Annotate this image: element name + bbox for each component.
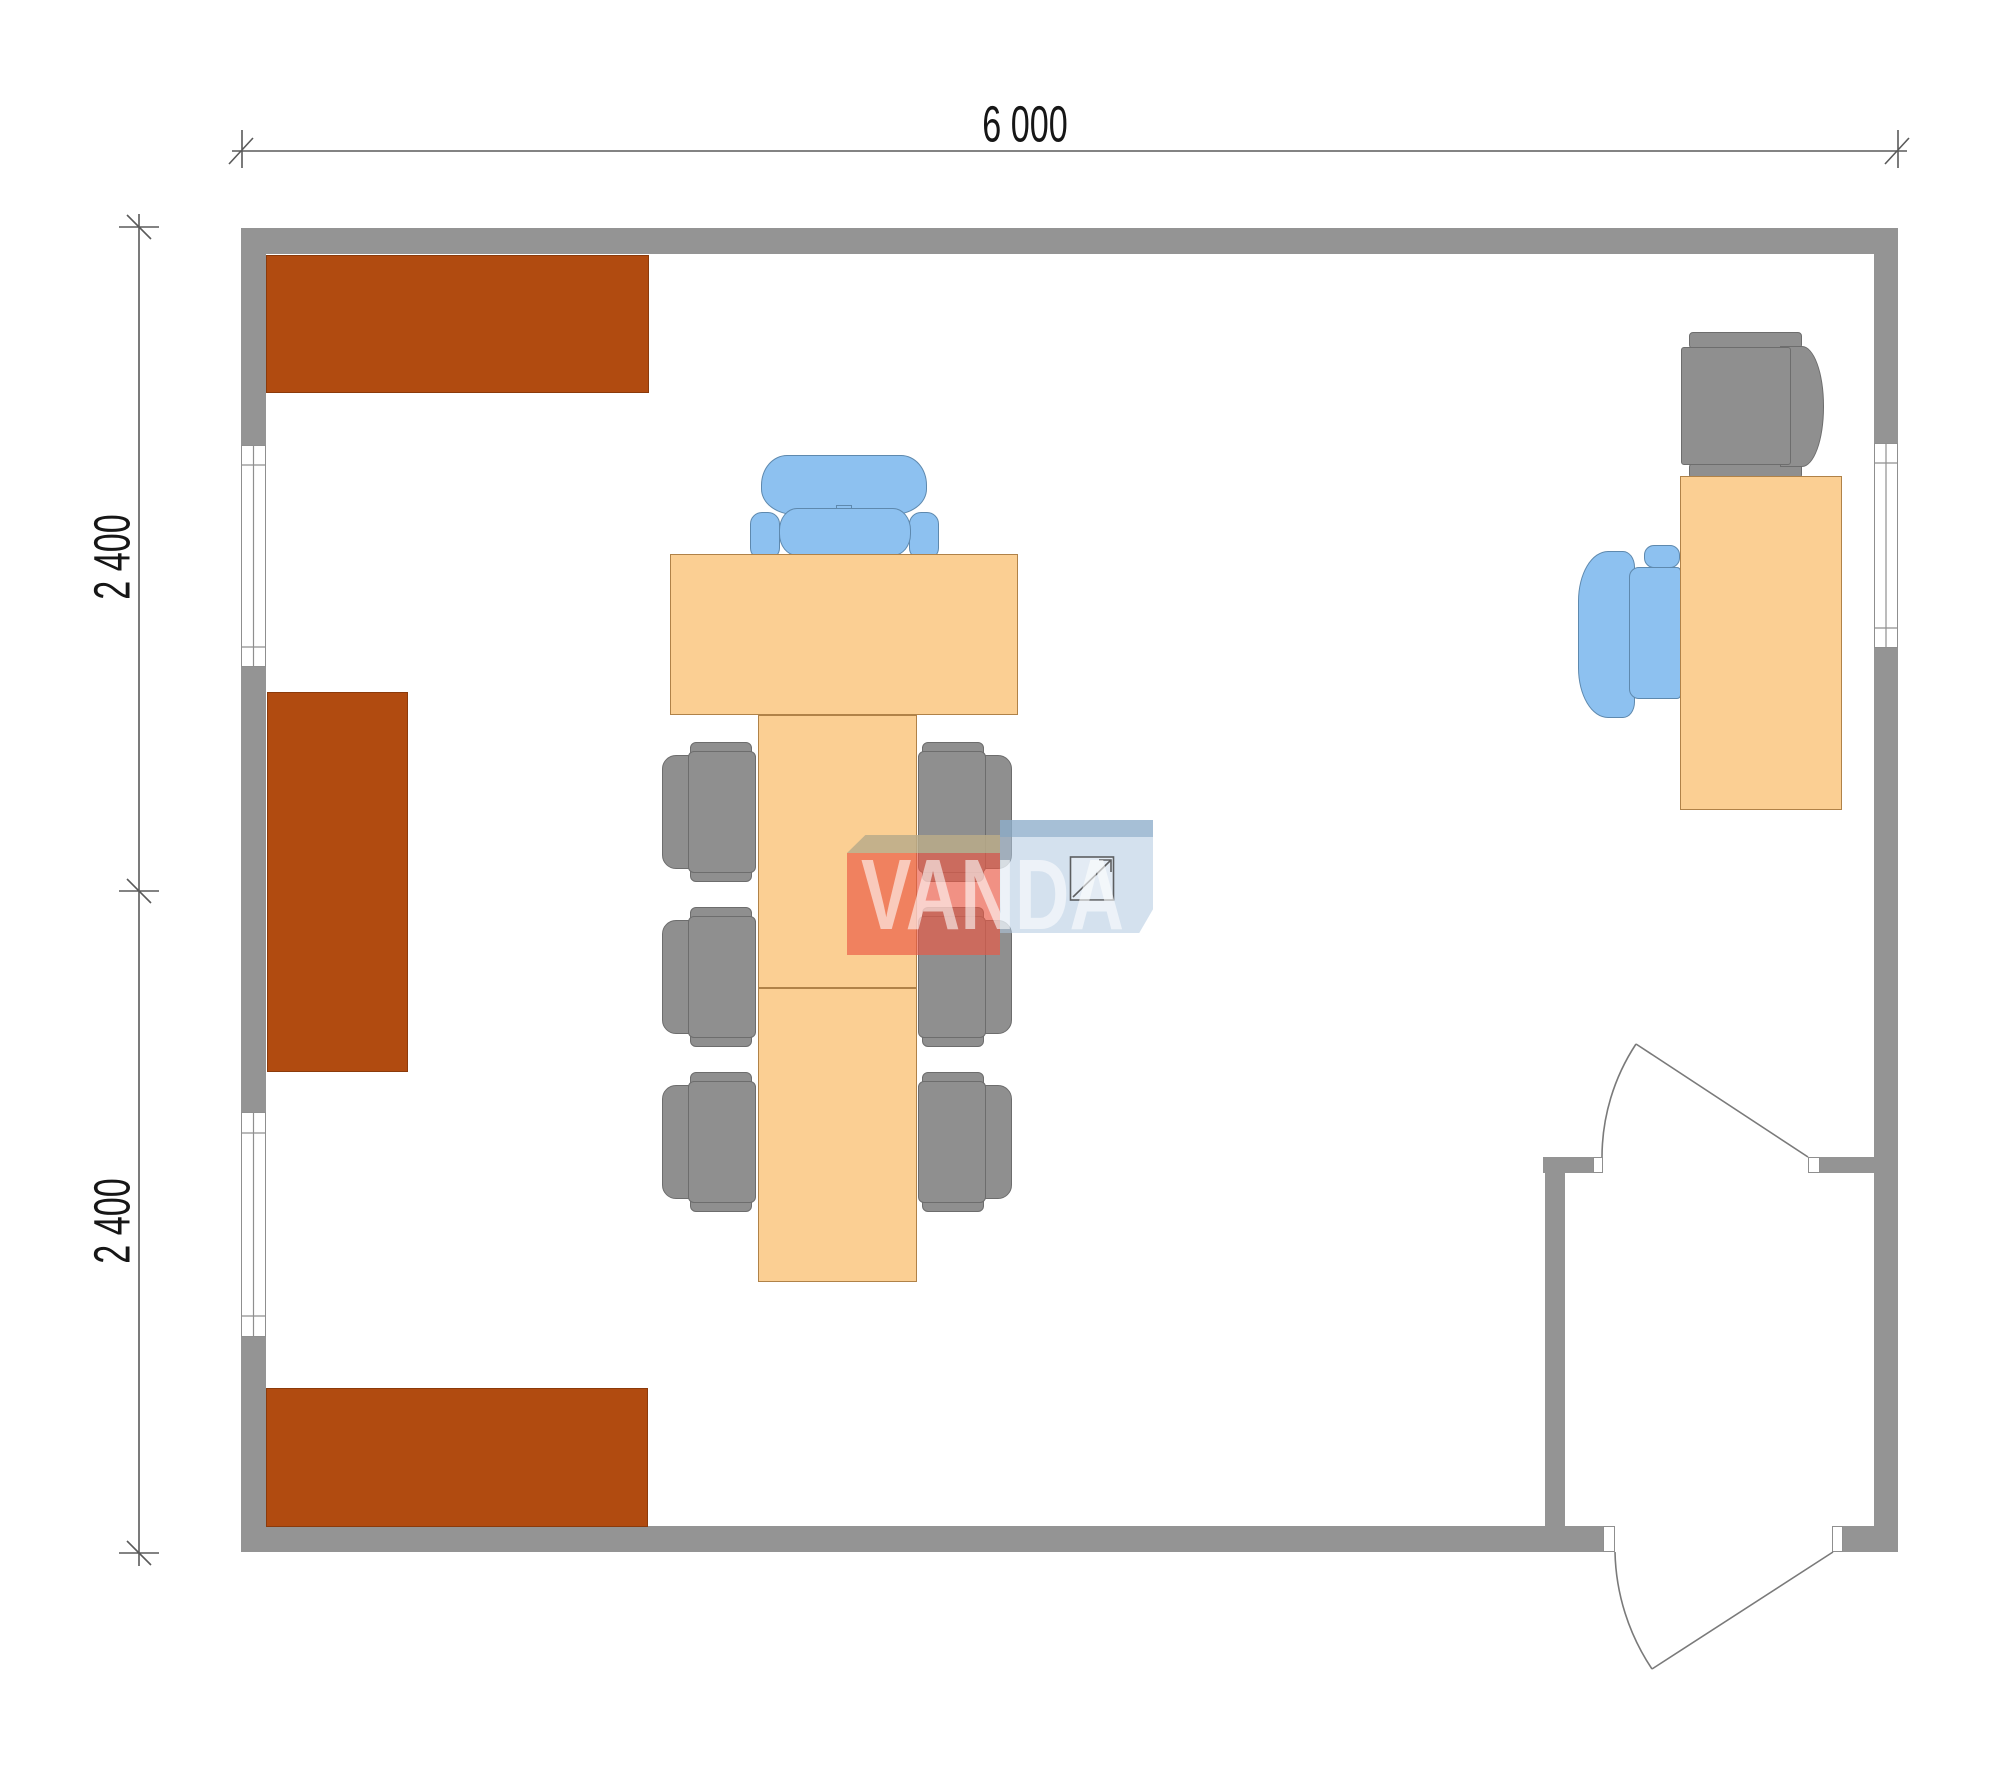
executive-chair-armrest-right	[909, 512, 939, 560]
wall-left-lower	[241, 1337, 266, 1552]
exterior-door-swing-arc	[1615, 1552, 1652, 1669]
vestibule-door-jamb-left	[1593, 1157, 1603, 1173]
executive-chair-backrest	[779, 508, 911, 556]
vestibule-door-swing-arc	[1602, 1044, 1636, 1157]
vestibule-door-leaf	[1636, 1044, 1808, 1157]
wall-right-lower	[1874, 648, 1898, 1552]
meeting-chair-seat	[688, 751, 756, 873]
window-right	[1874, 443, 1898, 648]
wall-top	[241, 228, 1898, 254]
dimension-label-width: 6 000	[982, 95, 1068, 154]
partition-wall-horizontal-right	[1820, 1157, 1874, 1173]
window-left-lower	[241, 1112, 266, 1337]
meeting-chair-seat	[688, 916, 756, 1038]
armchair-seat	[1681, 347, 1791, 465]
executive-desk	[670, 554, 1018, 715]
dim-tick-left-middle	[119, 879, 159, 903]
wall-left-middle	[241, 667, 266, 1112]
wall-right-upper	[1874, 228, 1898, 443]
dimension-label-height-upper: 2 400	[83, 514, 142, 600]
dim-tick-left-top	[119, 215, 159, 239]
office-chair-backrest	[1578, 551, 1635, 718]
exterior-door-jamb-left	[1603, 1526, 1615, 1552]
exterior-door-jamb-right	[1832, 1526, 1843, 1552]
office-chair-seat	[1629, 567, 1681, 699]
partition-wall-horizontal-left	[1543, 1157, 1593, 1173]
partition-wall-vertical	[1545, 1173, 1565, 1526]
window-left-upper	[241, 445, 266, 667]
executive-chair-armrest-left	[750, 512, 780, 560]
door-symbols	[1602, 1044, 1833, 1669]
wall-left-upper	[241, 228, 266, 445]
dim-tick-left-bottom	[119, 1541, 159, 1565]
dimension-label-height-lower: 2 400	[83, 1178, 142, 1264]
vestibule-door-jamb-right	[1808, 1157, 1820, 1173]
floor-plan: VANDA 6 000 2 400 2 400	[0, 0, 2000, 1773]
office-chair-armrest-top	[1644, 545, 1680, 568]
meeting-chair-seat	[688, 1081, 756, 1203]
exterior-door-leaf	[1652, 1552, 1833, 1669]
watermark-banner-fold	[847, 835, 1000, 853]
watermark-banner-red	[847, 853, 1000, 955]
cabinet-bottom-left	[266, 1388, 648, 1527]
cabinet-top-left	[266, 255, 649, 393]
conference-table-lower	[758, 988, 917, 1282]
watermark-banner-blue-strip	[1000, 820, 1153, 837]
meeting-chair-seat	[918, 1081, 986, 1203]
meeting-chair-backrest	[982, 1085, 1012, 1199]
dim-tick-top-left	[229, 130, 253, 168]
dim-tick-top-right	[1885, 130, 1909, 168]
cabinet-middle-left	[267, 692, 408, 1072]
wall-bottom-left-segment	[241, 1526, 1603, 1552]
desk-right	[1680, 476, 1842, 810]
